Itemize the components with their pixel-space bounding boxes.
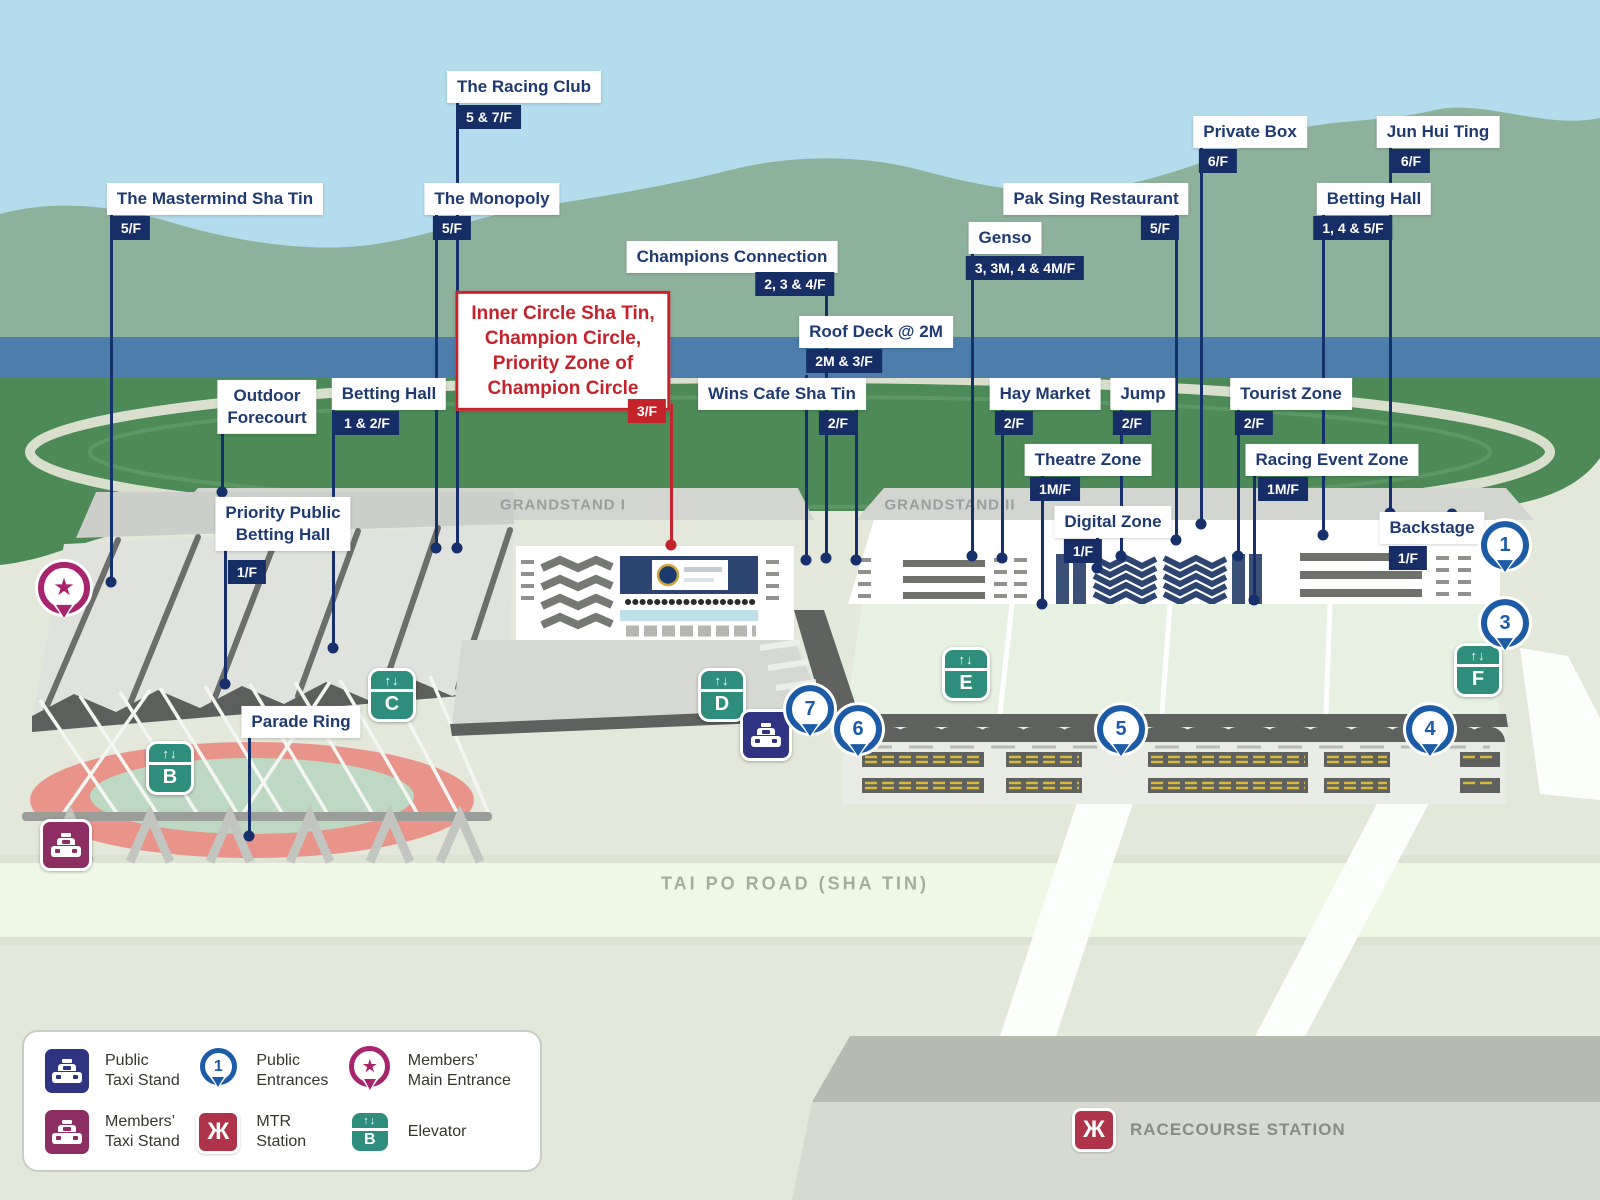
legend-icon: B — [345, 1110, 395, 1154]
racecourse-map: The Racing Club5 & 7/FThe Mastermind Sha… — [0, 0, 1600, 1200]
floor-tag-hay-market: 2/F — [995, 411, 1033, 435]
floor-tag-the-monopoly: 5/F — [433, 216, 471, 240]
leader-line-outdoor-forecourt — [221, 434, 224, 492]
elevator-badge: C — [368, 668, 416, 722]
floor-tag-jump: 2/F — [1113, 411, 1151, 435]
region-label: GRANDSTAND I — [500, 497, 626, 514]
entrance-number: 4 — [1424, 718, 1435, 741]
callout-label-genso: Genso — [969, 222, 1042, 254]
leader-line-genso — [971, 252, 974, 556]
callout-label-champions-connection: Champions Connection — [627, 241, 838, 273]
elevator-letter: B — [149, 765, 191, 792]
public-entrance-pin: 1 — [200, 1048, 237, 1085]
taxi-body-icon — [751, 736, 781, 747]
callout-label-the-monopoly: The Monopoly — [424, 183, 559, 215]
floor-tag-betting-hall-grandstand-1: 1 & 2/F — [335, 411, 399, 435]
taxi-sign-icon — [62, 1120, 72, 1124]
up-down-arrows-icon — [371, 671, 413, 692]
callout-label-betting-hall-grandstand-1: Betting Hall — [332, 378, 446, 410]
legend-item-label: Members’ Main Entrance — [408, 1051, 511, 1090]
elevator-badge: D — [698, 668, 746, 722]
leader-dot-jump — [1116, 551, 1127, 562]
leader-dot-betting-hall-grandstand-1 — [328, 643, 339, 654]
entrance-number: 6 — [852, 718, 863, 741]
leader-dot-racing-event-zone — [1249, 595, 1260, 606]
legend-item-label: Members’ Taxi Stand — [105, 1112, 180, 1151]
taxi-body-icon — [51, 846, 81, 857]
legend-icon — [42, 1107, 92, 1157]
callout-label-jump: Jump — [1110, 378, 1175, 410]
floor-tag-genso: 3, 3M, 4 & 4M/F — [966, 256, 1084, 280]
legend-icon — [42, 1046, 92, 1096]
taxi-roof-icon — [57, 838, 75, 845]
elevator-badge: B — [349, 1110, 391, 1154]
callout-label-tourist-zone: Tourist Zone — [1230, 378, 1352, 410]
leader-dot-inner-circle-sha-tin — [666, 540, 677, 551]
up-down-arrows-icon — [945, 650, 987, 671]
legend-item-label: Elevator — [408, 1122, 467, 1142]
elevator-badge: E — [942, 647, 990, 701]
members-taxi-stand-icon — [42, 1107, 92, 1157]
elevator-badge: B — [146, 741, 194, 795]
public-entrance-pin: 4 — [1406, 705, 1454, 753]
callout-label-the-mastermind-sha-tin: The Mastermind Sha Tin — [107, 183, 323, 215]
callout-label-racing-event-zone: Racing Event Zone — [1245, 444, 1418, 476]
floor-tag-champions-connection: 2, 3 & 4/F — [755, 272, 834, 296]
floor-tag-roof-deck-2m: 2M & 3/F — [806, 349, 882, 373]
legend-item-label: Public Entrances — [256, 1051, 328, 1090]
entrance-number: 7 — [804, 698, 815, 721]
leader-line-parade-ring — [248, 736, 251, 836]
legend-item: 1Public Entrances — [193, 1040, 344, 1101]
leader-line-pak-sing-restaurant — [1175, 213, 1178, 540]
leader-dot-hay-market — [997, 553, 1008, 564]
legend-item: Public Taxi Stand — [42, 1040, 193, 1101]
leader-dot-wins-cafe-sha-tin — [851, 555, 862, 566]
taxi-roof-icon — [757, 728, 775, 735]
legend-icon — [345, 1054, 395, 1087]
members-main-entrance-pin — [38, 562, 90, 614]
floor-tag-private-box: 6/F — [1199, 149, 1237, 173]
floor-tag-jun-hui-ting: 6/F — [1392, 149, 1430, 173]
taxi-sign-icon — [761, 723, 771, 727]
callout-label-theatre-zone: Theatre Zone — [1025, 444, 1152, 476]
callout-label-inner-circle-sha-tin: Inner Circle Sha Tin, Champion Circle, P… — [455, 291, 670, 411]
legend-item: MTR Station — [193, 1101, 344, 1162]
taxi-body-icon — [52, 1133, 82, 1144]
callout-label-hay-market: Hay Market — [990, 378, 1101, 410]
taxi-roof-icon — [58, 1064, 76, 1071]
floor-tag-priority-public-betting-hall: 1/F — [228, 560, 266, 584]
up-down-arrows-icon — [352, 1113, 388, 1131]
mtr-logo-icon — [196, 1110, 240, 1154]
star-icon — [53, 576, 75, 600]
public-taxi-stand-icon — [740, 709, 792, 761]
members-taxi-stand-icon — [40, 819, 92, 871]
members-main-entrance-pin — [349, 1046, 390, 1087]
floor-tag-inner-circle-sha-tin: 3/F — [628, 399, 666, 423]
entrance-number: 3 — [1499, 612, 1510, 635]
elevator-letter: C — [371, 692, 413, 719]
leader-line-betting-hall-grandstand-2 — [1322, 213, 1325, 535]
callout-label-private-box: Private Box — [1193, 116, 1307, 148]
callout-label-outdoor-forecourt: Outdoor Forecourt — [217, 380, 316, 434]
floor-tag-racing-event-zone: 1M/F — [1258, 477, 1308, 501]
elevator-letter: B — [352, 1131, 388, 1151]
legend-item-label: MTR Station — [256, 1112, 344, 1151]
leader-dot-the-mastermind-sha-tin — [106, 577, 117, 588]
leader-dot-betting-hall-grandstand-2 — [1318, 530, 1329, 541]
leader-line-racing-event-zone — [1253, 474, 1256, 600]
star-icon — [362, 1057, 378, 1077]
callout-label-jun-hui-ting: Jun Hui Ting — [1377, 116, 1500, 148]
leader-dot-the-monopoly — [431, 543, 442, 554]
elevator-letter: F — [1457, 667, 1499, 694]
floor-tag-wins-cafe-sha-tin: 2/F — [819, 411, 857, 435]
floor-tag-the-mastermind-sha-tin: 5/F — [112, 216, 150, 240]
map-legend: Public Taxi Stand1Public EntrancesMember… — [22, 1030, 542, 1172]
legend-item: BElevator — [345, 1101, 534, 1162]
station-label: RACECOURSE STATION — [1130, 1120, 1346, 1140]
public-entrance-pin: 5 — [1097, 705, 1145, 753]
leader-dot-roof-deck-2m — [801, 555, 812, 566]
legend-item: Members’ Main Entrance — [345, 1040, 534, 1101]
leader-dot-private-box — [1196, 519, 1207, 530]
leader-dot-genso — [967, 551, 978, 562]
legend-icon: 1 — [193, 1056, 243, 1085]
legend-icon — [193, 1110, 243, 1154]
floor-tag-digital-zone: 1/F — [1064, 539, 1102, 563]
floor-tag-the-racing-club: 5 & 7/F — [457, 105, 521, 129]
elevator-letter: D — [701, 692, 743, 719]
callout-label-priority-public-betting-hall: Priority Public Betting Hall — [215, 497, 350, 551]
entrance-number: 5 — [1115, 718, 1126, 741]
taxi-sign-icon — [62, 1059, 72, 1063]
floor-tag-backstage: 1/F — [1389, 546, 1427, 570]
floor-tag-pak-sing-restaurant: 5/F — [1141, 216, 1179, 240]
entrance-number: 1 — [214, 1058, 223, 1076]
public-entrance-pin: 3 — [1481, 599, 1529, 647]
racecourse-station: RACECOURSE STATION — [1072, 1108, 1346, 1152]
leader-line-private-box — [1200, 146, 1203, 524]
leader-dot-priority-public-betting-hall — [220, 679, 231, 690]
public-taxi-stand-icon — [42, 1046, 92, 1096]
leader-dot-parade-ring — [244, 831, 255, 842]
leader-line-inner-circle-sha-tin — [670, 404, 673, 545]
elevator-letter: E — [945, 671, 987, 698]
taxi-sign-icon — [61, 833, 71, 837]
leader-line-priority-public-betting-hall — [224, 548, 227, 684]
leader-dot-outdoor-forecourt — [217, 487, 228, 498]
public-entrance-pin: 6 — [834, 705, 882, 753]
floor-tag-theatre-zone: 1M/F — [1030, 477, 1080, 501]
leader-dot-theatre-zone — [1037, 599, 1048, 610]
floor-tag-tourist-zone: 2/F — [1235, 411, 1273, 435]
taxi-roof-icon — [58, 1125, 76, 1132]
taxi-body-icon — [52, 1072, 82, 1083]
leader-dot-tourist-zone — [1233, 551, 1244, 562]
public-entrance-pin: 1 — [1481, 521, 1529, 569]
callout-label-betting-hall-grandstand-2: Betting Hall — [1317, 183, 1431, 215]
leader-dot-digital-zone — [1092, 563, 1103, 574]
entrance-number: 1 — [1499, 534, 1510, 557]
callout-label-pak-sing-restaurant: Pak Sing Restaurant — [1003, 183, 1188, 215]
callout-label-roof-deck-2m: Roof Deck @ 2M — [799, 316, 953, 348]
leader-dot-champions-connection — [821, 553, 832, 564]
leader-line-the-mastermind-sha-tin — [110, 212, 113, 582]
public-entrance-pin: 7 — [786, 685, 834, 733]
callout-label-the-racing-club: The Racing Club — [447, 71, 601, 103]
leader-dot-pak-sing-restaurant — [1171, 535, 1182, 546]
legend-item: Members’ Taxi Stand — [42, 1101, 193, 1162]
leader-dot-the-racing-club — [452, 543, 463, 554]
region-label: GRANDSTAND II — [884, 497, 1015, 514]
floor-tag-betting-hall-grandstand-2: 1, 4 & 5/F — [1313, 216, 1392, 240]
map-overlay: The Racing Club5 & 7/FThe Mastermind Sha… — [0, 0, 1600, 1200]
mtr-station-icon — [1072, 1108, 1116, 1152]
callout-label-parade-ring: Parade Ring — [241, 706, 360, 738]
up-down-arrows-icon — [149, 744, 191, 765]
up-down-arrows-icon — [701, 671, 743, 692]
road-label: TAI PO ROAD (SHA TIN) — [661, 874, 929, 895]
callout-label-backstage: Backstage — [1379, 512, 1484, 544]
legend-item-label: Public Taxi Stand — [105, 1051, 180, 1090]
callout-label-wins-cafe-sha-tin: Wins Cafe Sha Tin — [698, 378, 866, 410]
callout-label-digital-zone: Digital Zone — [1054, 506, 1171, 538]
